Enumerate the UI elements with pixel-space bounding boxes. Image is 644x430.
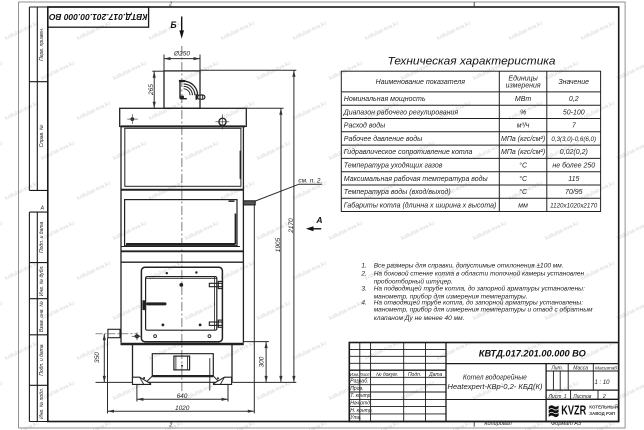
svg-text:kotlubat-kva.kz: kotlubat-kva.kz (4, 180, 40, 202)
svg-text:265: 265 (148, 84, 155, 96)
svg-text:На отводящей трубе котла, до з: На отводящей трубе котла, до запорной ар… (374, 299, 584, 307)
svg-text:Максимальная рабочая температу: Максимальная рабочая температура воды (344, 175, 489, 183)
svg-text:kotlubat-kva.kz: kotlubat-kva.kz (472, 220, 508, 242)
svg-text:kotlubat-kva.kz: kotlubat-kva.kz (400, 0, 436, 2)
svg-text:kotlubat-kva.kz: kotlubat-kva.kz (292, 20, 328, 42)
svg-text:Подп.: Подп. (408, 372, 421, 378)
svg-text:Все размеры для справки, допус: Все размеры для справки, допустимые откл… (374, 261, 564, 269)
svg-text:kotlubat-kva.kz: kotlubat-kva.kz (616, 220, 644, 242)
svg-text:300: 300 (258, 356, 265, 367)
svg-text:1120х1020х2170: 1120х1020х2170 (550, 202, 598, 209)
svg-text:kotlubat-kva.kz: kotlubat-kva.kz (0, 140, 4, 162)
svg-text:kotlubat-kva.kz: kotlubat-kva.kz (220, 260, 256, 282)
svg-text:Листов: Листов (572, 394, 592, 400)
svg-text:kotlubat-kva.kz: kotlubat-kva.kz (112, 140, 148, 162)
svg-text:Т. контр.: Т. контр. (350, 393, 372, 399)
svg-text:kotlubat-kva.kz: kotlubat-kva.kz (76, 180, 112, 202)
svg-text:kotlubat-kva.kz: kotlubat-kva.kz (76, 260, 112, 282)
svg-text:kotlubat-kva.kz: kotlubat-kva.kz (184, 0, 220, 2)
svg-text:kotlubat-kva.kz: kotlubat-kva.kz (112, 60, 148, 82)
svg-text:kotlubat-kva.kz: kotlubat-kva.kz (472, 0, 508, 2)
svg-text:м³/ч: м³/ч (517, 123, 530, 130)
svg-text:А: А (315, 215, 322, 225)
svg-text:kotlubat-kva.kz: kotlubat-kva.kz (256, 140, 292, 162)
svg-text:1020: 1020 (175, 405, 190, 412)
svg-text:kotlubat-kva.kz: kotlubat-kva.kz (112, 220, 148, 242)
svg-text:kotlubat-kva.kz: kotlubat-kva.kz (580, 20, 616, 42)
svg-text:Единицы: Единицы (508, 74, 538, 82)
svg-text:KVZR: KVZR (561, 403, 586, 418)
svg-text:Формат А3: Формат А3 (551, 421, 582, 427)
svg-text:kotlubat-kva.kz: kotlubat-kva.kz (256, 380, 292, 402)
svg-text:1905: 1905 (275, 237, 282, 252)
svg-text:kotlubat-kva.kz: kotlubat-kva.kz (580, 260, 616, 282)
svg-text:kotlubat-kva.kz: kotlubat-kva.kz (76, 20, 112, 42)
svg-text:Взам. инв. №: Взам. инв. № (39, 301, 45, 333)
svg-text:kotlubat-kva.kz: kotlubat-kva.kz (220, 180, 256, 202)
svg-text:Утв.: Утв. (350, 415, 361, 421)
svg-text:измерения: измерения (506, 83, 541, 90)
svg-text:1.: 1. (361, 262, 367, 269)
svg-text:Лист: Лист (359, 372, 372, 377)
svg-text:КВТД.017.201.00.000 ВО: КВТД.017.201.00.000 ВО (479, 348, 586, 358)
svg-text:350: 350 (94, 352, 101, 363)
svg-text:Ø250: Ø250 (173, 50, 190, 57)
svg-text:ЗАВОД РЭП: ЗАВОД РЭП (589, 411, 615, 416)
svg-text:манометр, прибор для измерения: манометр, прибор для измерения температу… (374, 306, 593, 314)
svg-text:см. п. 2.: см. п. 2. (298, 178, 322, 185)
svg-text:мм: мм (518, 202, 528, 209)
svg-text:kotlubat-kva.kz: kotlubat-kva.kz (292, 340, 328, 362)
svg-text:Инв. № дубл.: Инв. № дубл. (39, 265, 45, 296)
svg-text:°С: °С (519, 162, 528, 170)
svg-text:kotlubat-kva.kz: kotlubat-kva.kz (148, 20, 184, 42)
svg-text:kotlubat-kva.kz: kotlubat-kva.kz (436, 340, 472, 362)
svg-text:Номинальная мощность: Номинальная мощность (344, 96, 426, 103)
svg-text:Б: Б (170, 20, 176, 30)
svg-text:kotlubat-kva.kz: kotlubat-kva.kz (364, 20, 400, 42)
svg-text:kotlubat-kva.kz: kotlubat-kva.kz (544, 0, 580, 2)
svg-text:Рабочее давление воды: Рабочее давление воды (344, 135, 423, 143)
svg-text:клапаном Ду не менее 40 мм.: клапаном Ду не менее 40 мм. (374, 315, 465, 322)
svg-text:На подводящей трубе котла, до: На подводящей трубе котла, до запорной а… (374, 284, 585, 292)
svg-text:Дата: Дата (428, 372, 442, 378)
svg-text:0,2: 0,2 (569, 96, 579, 103)
svg-text:°С: °С (519, 175, 528, 183)
svg-text:7: 7 (572, 123, 577, 130)
svg-text:%: % (520, 109, 526, 116)
svg-text:kotlubat-kva.kz: kotlubat-kva.kz (256, 60, 292, 82)
svg-text:4.: 4. (361, 300, 367, 307)
svg-text:Масса: Масса (573, 365, 588, 371)
svg-text:Техническая характеристика: Техническая характеристика (388, 56, 556, 68)
svg-text:Гидравлическое сопротивление к: Гидравлическое сопротивление котла (344, 148, 473, 156)
svg-text:3.: 3. (361, 285, 367, 292)
svg-text:kotlubat-kva.kz: kotlubat-kva.kz (508, 20, 544, 42)
svg-text:Значение: Значение (558, 79, 589, 86)
svg-text:kotlubat-kva.kz: kotlubat-kva.kz (220, 100, 256, 122)
svg-text:kotlubat-kva.kz: kotlubat-kva.kz (40, 300, 76, 322)
svg-text:КОТЕЛЬНЫЙ: КОТЕЛЬНЫЙ (589, 405, 618, 410)
svg-text:kotlubat-kva.kz: kotlubat-kva.kz (0, 300, 4, 322)
svg-text:А: А (40, 205, 45, 211)
svg-text:Лист: Лист (548, 394, 562, 400)
svg-text:2.: 2. (360, 270, 367, 277)
svg-text:kotlubat-kva.kz: kotlubat-kva.kz (0, 220, 4, 242)
svg-text:kotlubat-kva.kz: kotlubat-kva.kz (292, 260, 328, 282)
svg-text:На боковой стенке котла в обла: На боковой стенке котла в области топочн… (374, 269, 585, 277)
svg-text:Котел водогрейные: Котел водогрейные (463, 373, 527, 382)
svg-text:kotlubat-kva.kz: kotlubat-kva.kz (616, 140, 644, 162)
svg-text:kotlubat-kva.kz: kotlubat-kva.kz (256, 0, 292, 2)
svg-text:°С: °С (519, 188, 528, 196)
svg-text:kotlubat-kva.kz: kotlubat-kva.kz (364, 340, 400, 362)
svg-text:Диапазон рабочего регулировани: Диапазон рабочего регулирования (343, 108, 459, 116)
svg-text:Инв. № подл.: Инв. № подл. (39, 388, 45, 419)
svg-text:kotlubat-kva.kz: kotlubat-kva.kz (292, 100, 328, 122)
svg-text:Масштаб: Масштаб (595, 365, 617, 370)
svg-text:kotlubat-kva.kz: kotlubat-kva.kz (40, 60, 76, 82)
svg-text:kotlubat-kva.kz: kotlubat-kva.kz (184, 220, 220, 242)
svg-text:Температура уходящих газов: Температура уходящих газов (344, 162, 443, 170)
svg-text:kotlubat-kva.kz: kotlubat-kva.kz (616, 300, 644, 322)
svg-text:№ докум.: № докум. (376, 372, 398, 378)
svg-text:Температура воды (вход/выход): Температура воды (вход/выход) (344, 188, 451, 196)
svg-text:kotlubat-kva.kz: kotlubat-kva.kz (256, 300, 292, 322)
svg-text:МПа (кгс/см²): МПа (кгс/см²) (501, 136, 545, 143)
svg-text:kotlubat-kva.kz: kotlubat-kva.kz (328, 300, 364, 322)
svg-text:kotlubat-kva.kz: kotlubat-kva.kz (76, 100, 112, 122)
svg-text:kotlubat-kva.kz: kotlubat-kva.kz (40, 140, 76, 162)
svg-text:Подп. и дата: Подп. и дата (39, 344, 45, 376)
svg-text:Разраб.: Разраб. (350, 378, 368, 384)
svg-text:Подп. и дата: Подп. и дата (39, 222, 45, 254)
svg-text:Лит.: Лит. (550, 365, 563, 371)
svg-text:Heatexpert-КВр-0,2- КБД(К): Heatexpert-КВр-0,2- КБД(К) (448, 382, 543, 391)
svg-text:kotlubat-kva.kz: kotlubat-kva.kz (184, 140, 220, 162)
svg-text:Копировал: Копировал (484, 421, 511, 427)
svg-text:kotlubat-kva.kz: kotlubat-kva.kz (148, 180, 184, 202)
svg-text:2170: 2170 (288, 218, 295, 234)
svg-text:kotlubat-kva.kz: kotlubat-kva.kz (400, 380, 436, 402)
svg-text:kotlubat-kva.kz: kotlubat-kva.kz (4, 340, 40, 362)
svg-text:kotlubat-kva.kz: kotlubat-kva.kz (328, 0, 364, 2)
svg-text:Изм.: Изм. (350, 372, 359, 377)
svg-text:640: 640 (177, 393, 188, 400)
svg-text:kotlubat-kva.kz: kotlubat-kva.kz (436, 20, 472, 42)
svg-text:1 : 10: 1 : 10 (594, 380, 610, 386)
svg-text:kotlubat-kva.kz: kotlubat-kva.kz (616, 60, 644, 82)
svg-text:Перв. примен.: Перв. примен. (39, 28, 45, 61)
svg-text:Пров.: Пров. (350, 386, 363, 392)
svg-text:kotlubat-kva.kz: kotlubat-kva.kz (328, 220, 364, 242)
svg-text:kotlubat-kva.kz: kotlubat-kva.kz (0, 60, 4, 82)
svg-text:2: 2 (602, 394, 606, 400)
svg-text:kotlubat-kva.kz: kotlubat-kva.kz (256, 220, 292, 242)
svg-text:kotlubat-kva.kz: kotlubat-kva.kz (40, 0, 76, 2)
svg-text:kotlubat-kva.kz: kotlubat-kva.kz (40, 220, 76, 242)
svg-text:kotlubat-kva.kz: kotlubat-kva.kz (4, 20, 40, 42)
svg-text:kotlubat-kva.kz: kotlubat-kva.kz (616, 0, 644, 2)
svg-text:Габариты котла (длинна х ширин: Габариты котла (длинна х ширина х высота… (344, 201, 497, 209)
svg-text:kotlubat-kva.kz: kotlubat-kva.kz (4, 100, 40, 122)
svg-text:Нач.отд.: Нач.отд. (350, 401, 371, 407)
svg-text:КВТД.017.201.00.000 ВО: КВТД.017.201.00.000 ВО (49, 12, 148, 22)
svg-text:kotlubat-kva.kz: kotlubat-kva.kz (112, 0, 148, 2)
svg-text:kotlubat-kva.kz: kotlubat-kva.kz (0, 0, 4, 2)
svg-text:kotlubat-kva.kz: kotlubat-kva.kz (544, 220, 580, 242)
svg-text:1: 1 (564, 394, 567, 400)
svg-text:Справ. №: Справ. № (39, 124, 45, 147)
svg-text:kotlubat-kva.kz: kotlubat-kva.kz (616, 380, 644, 402)
svg-text:115: 115 (568, 176, 579, 183)
svg-text:МПа (кгс/см²): МПа (кгс/см²) (501, 149, 545, 156)
svg-text:kotlubat-kva.kz: kotlubat-kva.kz (400, 220, 436, 242)
svg-text:Наименование показателя: Наименование показателя (376, 79, 466, 86)
svg-text:Н. контр.: Н. контр. (350, 408, 373, 414)
svg-text:2: 2 (168, 422, 172, 428)
svg-text:70/95: 70/95 (565, 189, 583, 196)
svg-text:не более 250: не более 250 (552, 162, 595, 170)
svg-text:kotlubat-kva.kz: kotlubat-kva.kz (40, 380, 76, 402)
svg-text:2: 2 (168, 2, 172, 8)
svg-text:kotlubat-kva.kz: kotlubat-kva.kz (220, 20, 256, 42)
svg-text:kotlubat-kva.kz: kotlubat-kva.kz (4, 260, 40, 282)
svg-text:kotlubat-kva.kz: kotlubat-kva.kz (0, 380, 4, 402)
svg-text:0,3(3,0)-0,6(6,0): 0,3(3,0)-0,6(6,0) (551, 136, 596, 143)
svg-text:50-100: 50-100 (563, 109, 585, 116)
svg-text:МВт: МВт (515, 96, 532, 103)
svg-text:0,02(0,2): 0,02(0,2) (560, 149, 588, 156)
svg-text:Расход воды: Расход воды (344, 122, 386, 130)
